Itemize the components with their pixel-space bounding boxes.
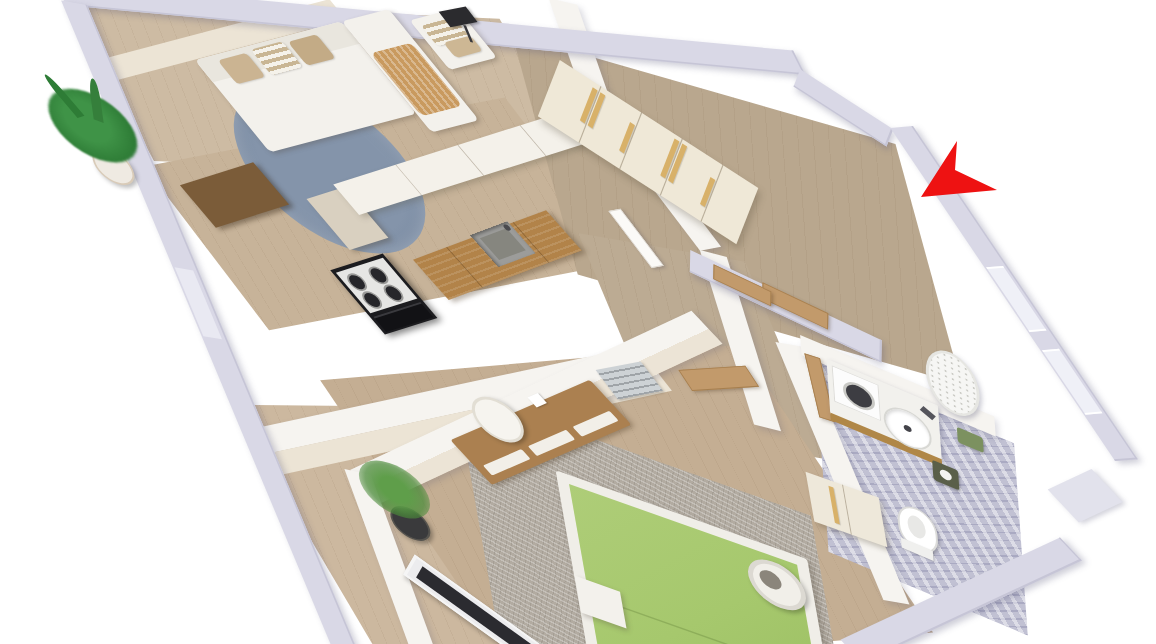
- floor-plan-render: [0, 0, 1156, 644]
- basket-contents: [756, 569, 784, 591]
- left-wall-window-recess: [175, 267, 222, 339]
- bedroom-door: [678, 366, 759, 391]
- right-wall-window-2: [1042, 349, 1102, 415]
- paper-roll: [939, 468, 952, 482]
- toilet-bowl: [907, 512, 926, 541]
- floor-lamp-pole: [463, 25, 473, 43]
- apartment-plan: [58, 0, 1156, 644]
- bath-stool: [932, 460, 959, 491]
- basin-drain: [903, 424, 911, 433]
- green-towel: [957, 427, 984, 453]
- exterior-wall-step: [1048, 469, 1123, 522]
- right-wall-window-1: [986, 266, 1046, 332]
- nook-plant-foliage: [349, 455, 440, 523]
- floor-lamp-shade: [439, 7, 478, 28]
